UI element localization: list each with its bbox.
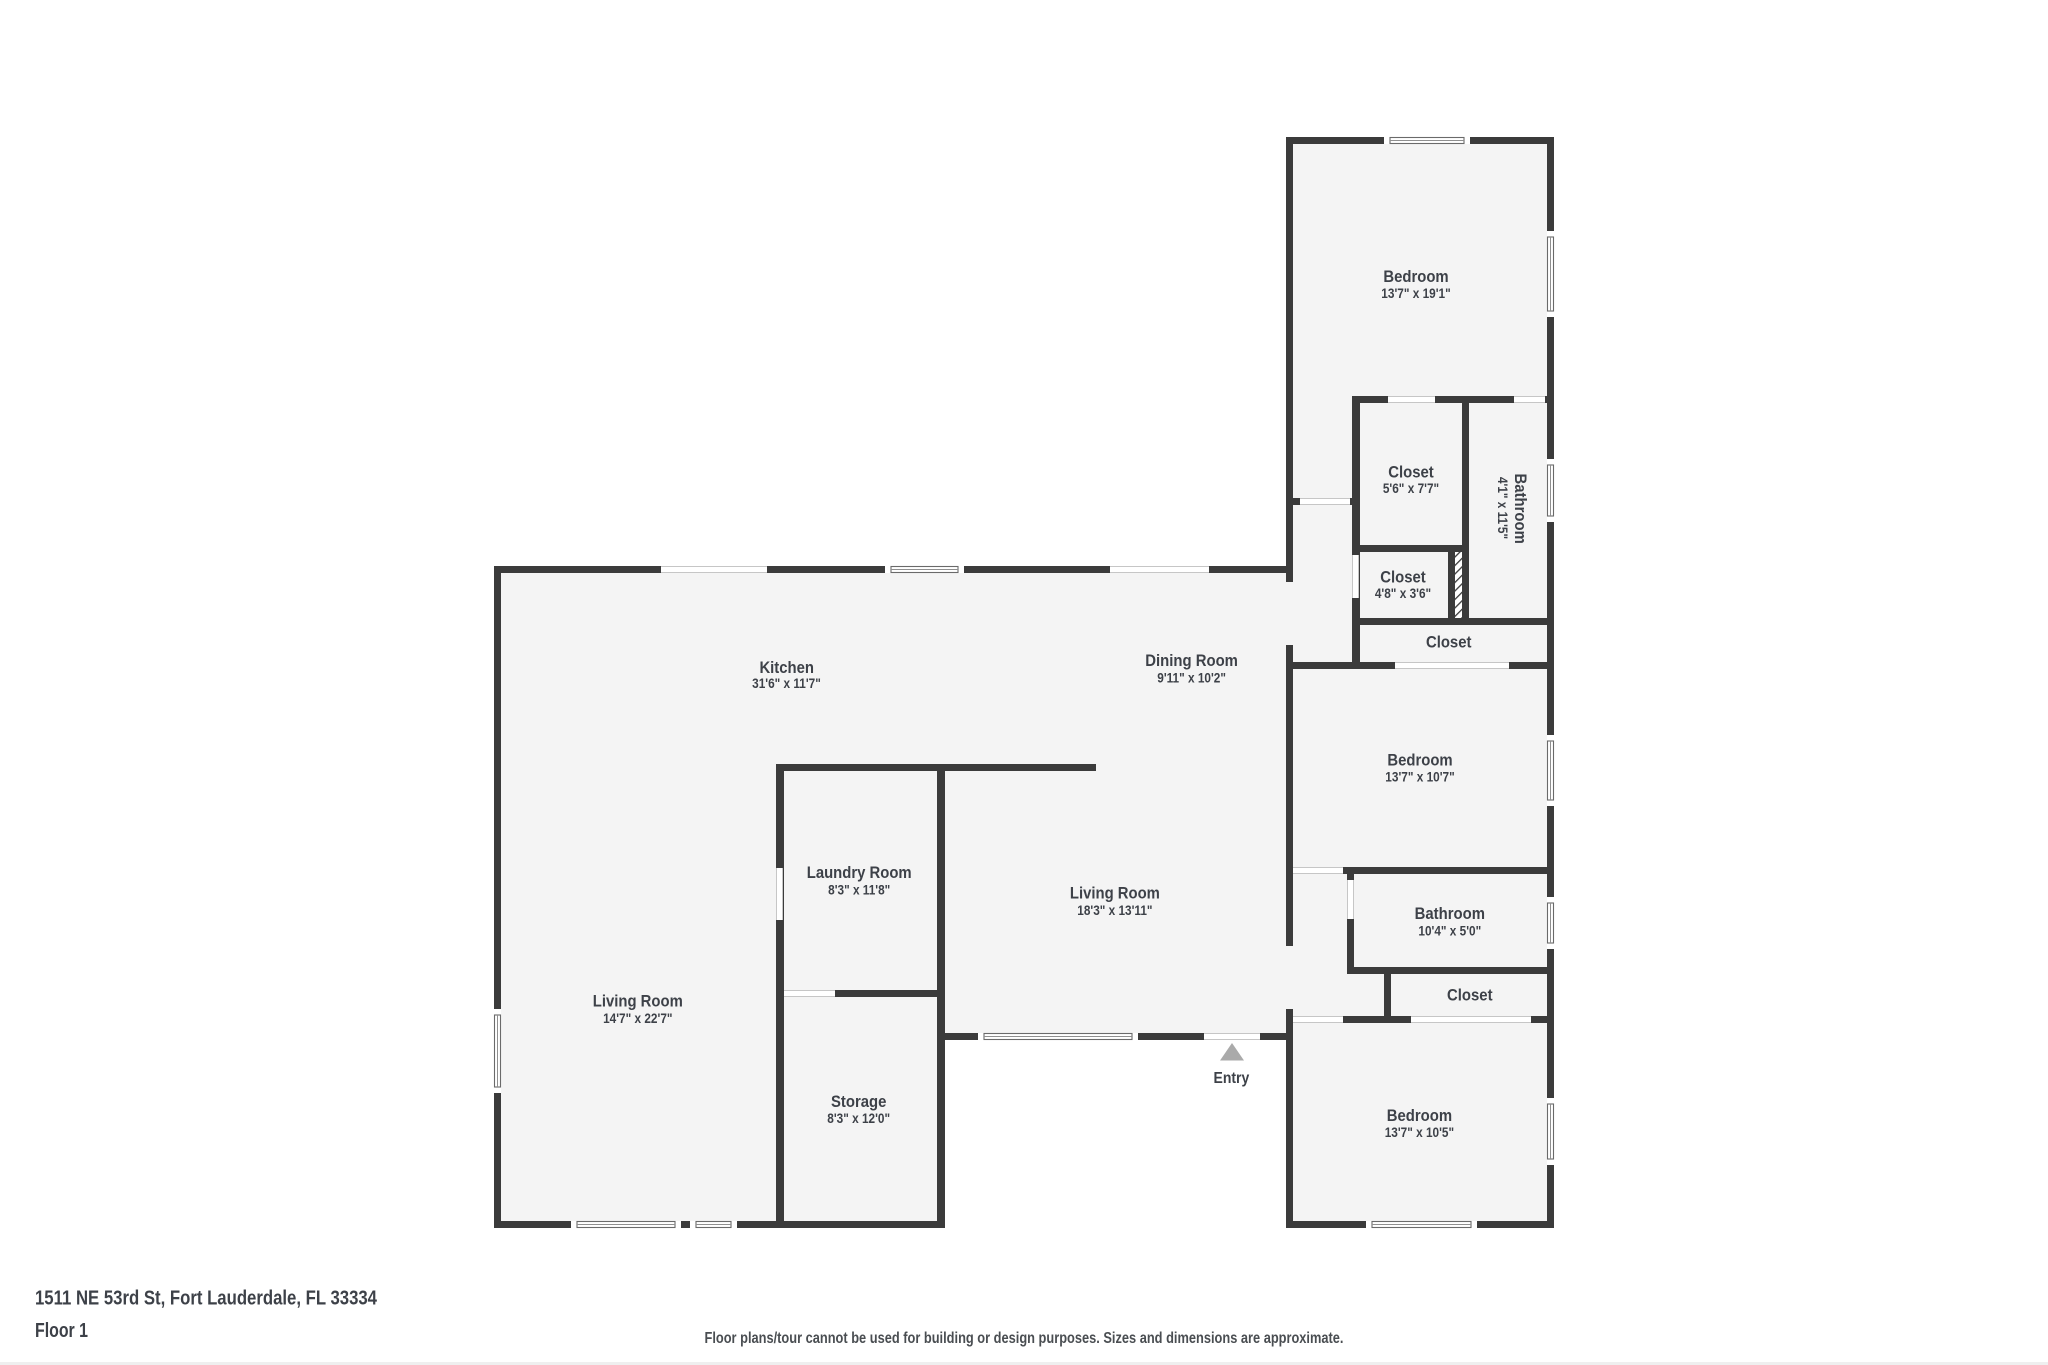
- svg-text:Kitchen: Kitchen: [759, 658, 814, 677]
- svg-text:Dining Room: Dining Room: [1145, 651, 1238, 670]
- svg-text:Storage: Storage: [831, 1092, 886, 1111]
- svg-text:5'6" x 7'7": 5'6" x 7'7": [1383, 481, 1439, 496]
- svg-text:10'4" x 5'0": 10'4" x 5'0": [1418, 923, 1481, 938]
- svg-text:4'8" x 3'6": 4'8" x 3'6": [1375, 586, 1431, 601]
- svg-text:Living Room: Living Room: [1070, 884, 1160, 903]
- svg-text:Bedroom: Bedroom: [1383, 267, 1448, 286]
- svg-text:18'3" x 13'11": 18'3" x 13'11": [1077, 903, 1152, 918]
- svg-text:8'3" x 11'8": 8'3" x 11'8": [828, 883, 890, 898]
- svg-text:Entry: Entry: [1214, 1070, 1250, 1087]
- svg-text:Laundry Room: Laundry Room: [807, 863, 912, 882]
- svg-text:4'1" x 11'5": 4'1" x 11'5": [1495, 477, 1510, 539]
- svg-text:31'6" x 11'7": 31'6" x 11'7": [752, 676, 821, 691]
- svg-text:Living Room: Living Room: [593, 992, 683, 1011]
- svg-text:Closet: Closet: [1388, 463, 1434, 482]
- svg-text:Bathroom: Bathroom: [1415, 904, 1485, 923]
- svg-text:Closet: Closet: [1426, 633, 1472, 652]
- svg-text:13'7" x 19'1": 13'7" x 19'1": [1381, 286, 1450, 301]
- svg-text:Floor 1: Floor 1: [35, 1320, 88, 1342]
- svg-text:9'11" x 10'2": 9'11" x 10'2": [1157, 671, 1226, 686]
- svg-text:13'7" x 10'7": 13'7" x 10'7": [1385, 769, 1454, 784]
- svg-text:Bedroom: Bedroom: [1387, 751, 1452, 770]
- svg-text:13'7" x 10'5": 13'7" x 10'5": [1385, 1125, 1454, 1140]
- svg-text:1511 NE 53rd St, Fort Lauderda: 1511 NE 53rd St, Fort Lauderdale, FL 333…: [35, 1288, 378, 1310]
- svg-text:Bedroom: Bedroom: [1387, 1106, 1452, 1125]
- svg-text:Closet: Closet: [1380, 568, 1426, 587]
- svg-text:Floor plans/tour cannot be use: Floor plans/tour cannot be used for buil…: [705, 1330, 1344, 1347]
- svg-text:8'3" x 12'0": 8'3" x 12'0": [827, 1111, 890, 1126]
- svg-text:Closet: Closet: [1447, 986, 1493, 1005]
- svg-text:14'7" x 22'7": 14'7" x 22'7": [603, 1011, 672, 1026]
- svg-text:Bathroom: Bathroom: [1511, 474, 1530, 544]
